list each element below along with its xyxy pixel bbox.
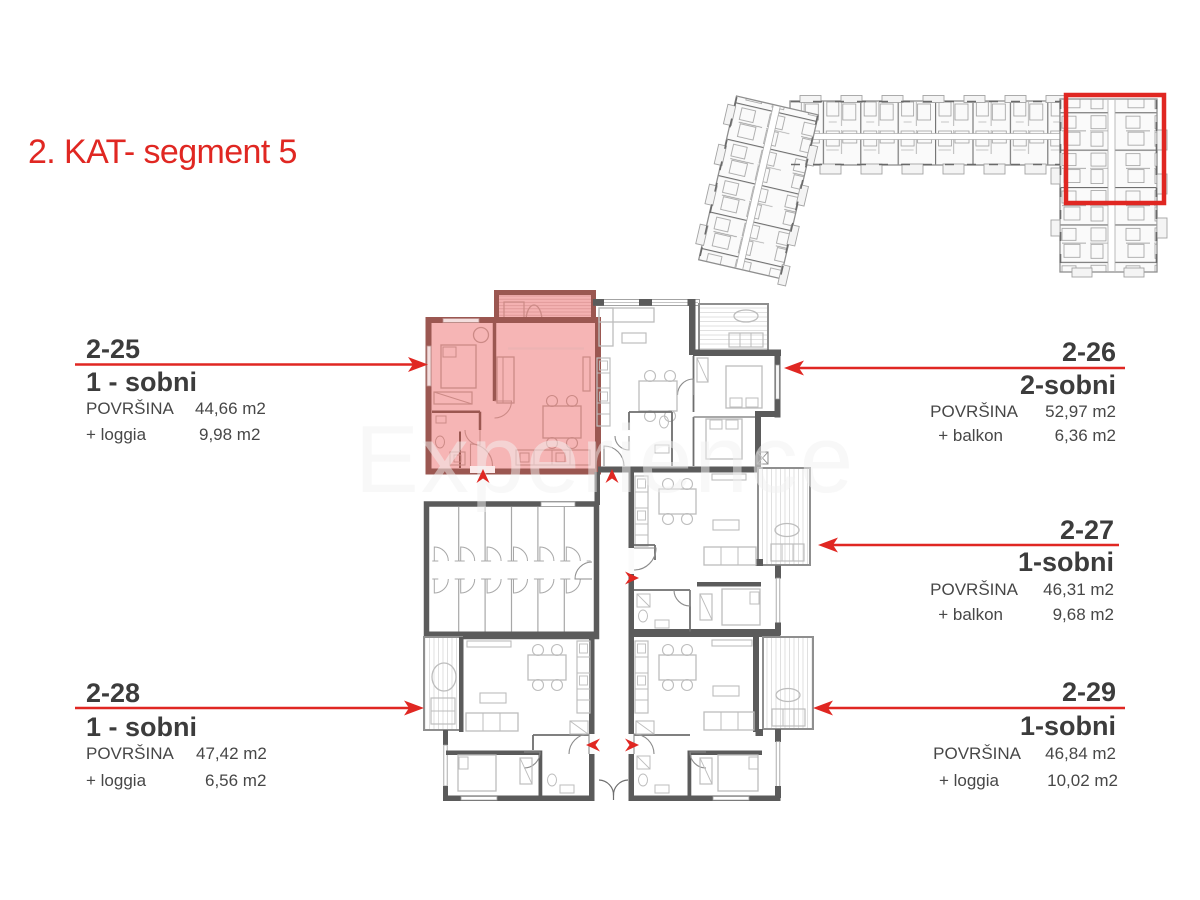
svg-text:46,84 m2: 46,84 m2: [1045, 744, 1116, 763]
svg-text:+ balkon: + balkon: [938, 605, 1003, 624]
svg-text:1-sobni: 1-sobni: [1020, 711, 1116, 741]
svg-text:2-25: 2-25: [86, 334, 140, 364]
svg-text:1 - sobni: 1 - sobni: [86, 367, 197, 397]
svg-text:6,36 m2: 6,36 m2: [1055, 426, 1116, 445]
svg-text:+ loggia: + loggia: [86, 425, 147, 444]
svg-text:POVRŠINA: POVRŠINA: [86, 399, 175, 418]
svg-text:2-29: 2-29: [1062, 677, 1116, 707]
svg-text:6,56 m2: 6,56 m2: [205, 771, 266, 790]
svg-text:10,02 m2: 10,02 m2: [1047, 771, 1118, 790]
svg-text:2-26: 2-26: [1062, 337, 1116, 367]
svg-text:52,97 m2: 52,97 m2: [1045, 402, 1116, 421]
svg-text:9,98 m2: 9,98 m2: [199, 425, 260, 444]
svg-text:POVRŠINA: POVRŠINA: [930, 580, 1019, 599]
svg-text:44,66 m2: 44,66 m2: [195, 399, 266, 418]
svg-text:POVRŠINA: POVRŠINA: [933, 744, 1022, 763]
svg-text:POVRŠINA: POVRŠINA: [86, 744, 175, 763]
svg-text:+ loggia: + loggia: [939, 771, 1000, 790]
svg-text:2. KAT- segment 5: 2. KAT- segment 5: [28, 133, 297, 171]
svg-text:2-28: 2-28: [86, 678, 140, 708]
svg-text:Experience: Experience: [355, 406, 855, 513]
svg-text:47,42 m2: 47,42 m2: [196, 744, 267, 763]
svg-text:POVRŠINA: POVRŠINA: [930, 402, 1019, 421]
svg-text:1-sobni: 1-sobni: [1018, 547, 1114, 577]
svg-text:46,31 m2: 46,31 m2: [1043, 580, 1114, 599]
svg-text:2-27: 2-27: [1060, 515, 1114, 545]
svg-text:9,68 m2: 9,68 m2: [1053, 605, 1114, 624]
svg-text:+ balkon: + balkon: [938, 426, 1003, 445]
svg-text:+ loggia: + loggia: [86, 771, 147, 790]
svg-text:2-sobni: 2-sobni: [1020, 370, 1116, 400]
svg-text:1 - sobni: 1 - sobni: [86, 712, 197, 742]
